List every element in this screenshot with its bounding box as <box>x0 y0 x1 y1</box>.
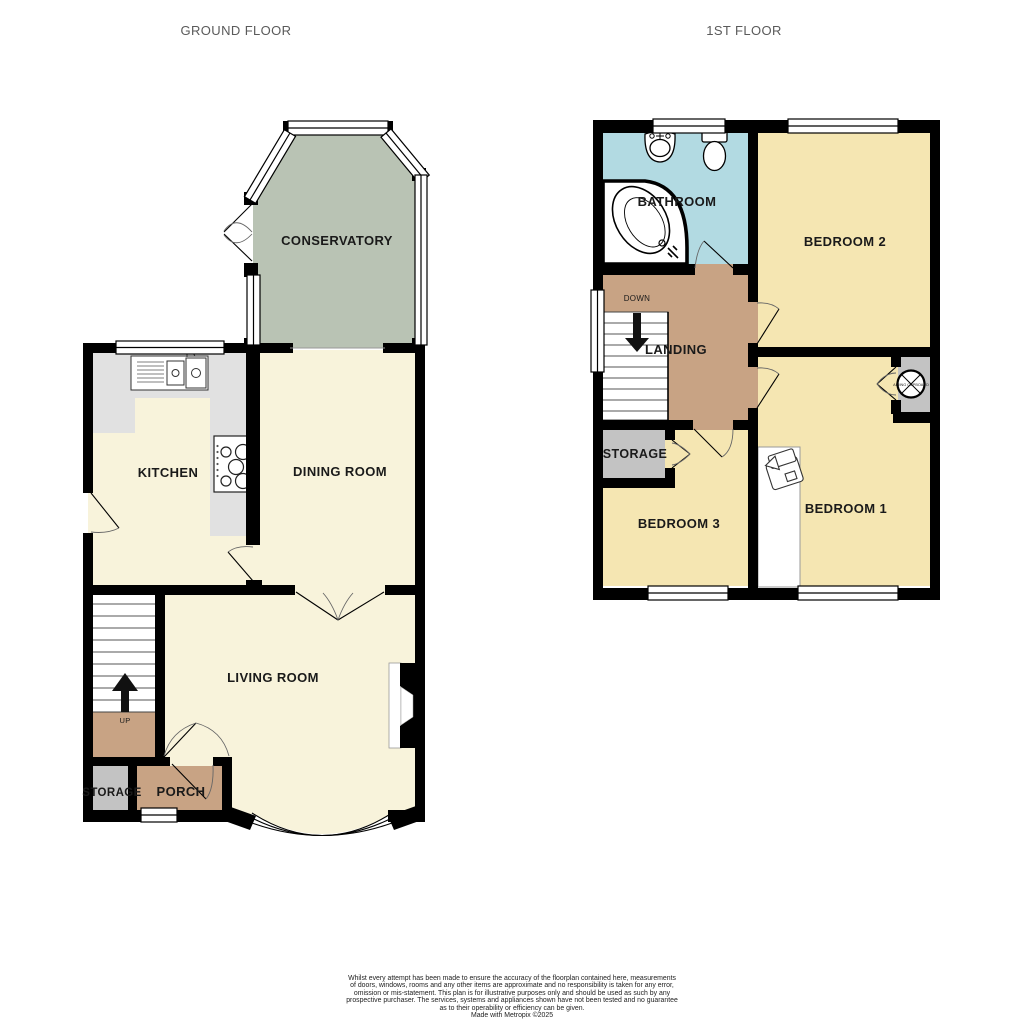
disclaimer-line: Whilst every attempt has been made to en… <box>0 975 1024 982</box>
doorway-bathroom <box>695 264 733 275</box>
title-ground-floor: GROUND FLOOR <box>181 23 292 38</box>
label-storage-first: STORAGE <box>603 447 667 461</box>
ground-floor: CONSERVATORY KITCHEN DINING ROOM LIVING … <box>82 121 429 836</box>
first-floor: BATHROOM BEDROOM 2 LANDING DOWN STORAGE … <box>591 119 940 600</box>
porch-window <box>141 808 177 822</box>
counter-left <box>93 353 135 433</box>
label-down: DOWN <box>624 294 651 303</box>
label-dining-room: DINING ROOM <box>293 464 387 479</box>
conservatory-window-left <box>247 275 260 345</box>
label-living-room: LIVING ROOM <box>227 670 319 685</box>
disclaimer-line: omission or mis-statement. This plan is … <box>0 990 1024 997</box>
label-landing: LANDING <box>645 342 707 357</box>
toilet-icon <box>702 129 727 171</box>
wardrobe-bedroom1 <box>758 447 804 587</box>
doorway-bedroom2 <box>748 302 758 343</box>
disclaimer-line: prospective purchaser. The services, sys… <box>0 997 1024 1004</box>
bathroom-window <box>653 119 725 133</box>
bedroom1-window <box>798 586 898 600</box>
label-conservatory: CONSERVATORY <box>281 233 393 248</box>
bay-floor <box>250 812 394 834</box>
disclaimer: Whilst every attempt has been made to en… <box>0 975 1024 1019</box>
label-kitchen: KITCHEN <box>138 465 199 480</box>
disclaimer-line: of doors, windows, rooms and any other i… <box>0 982 1024 989</box>
staircase-down <box>602 312 668 420</box>
bedroom3-window <box>648 586 728 600</box>
title-first-floor: 1ST FLOOR <box>706 23 782 38</box>
kitchen-window <box>116 341 224 354</box>
doorway-bedroom1 <box>748 367 758 408</box>
basin-icon <box>645 132 675 163</box>
metropix-credit: Made with Metropix ©2025 <box>0 1012 1024 1019</box>
staircase-up <box>88 592 157 712</box>
landing-window <box>591 290 604 372</box>
floorplan-page: CONSERVATORY KITCHEN DINING ROOM LIVING … <box>0 0 1024 1023</box>
label-bedroom2: BEDROOM 2 <box>804 234 886 249</box>
label-porch: PORCH <box>157 784 206 799</box>
disclaimer-line: as to their operability or efficiency ca… <box>0 1005 1024 1012</box>
conservatory-window-top <box>288 121 388 135</box>
label-airing-cupboard: AIRING CUPBOARD <box>893 383 929 387</box>
sink-unit-icon <box>131 353 208 390</box>
label-bathroom: BATHROOM <box>638 194 717 209</box>
conservatory-window-right <box>415 175 427 345</box>
chimney-fireplace <box>389 663 424 748</box>
label-storage-ground: STORAGE <box>82 787 141 799</box>
bedroom2-window <box>788 119 898 133</box>
label-up: UP <box>119 716 130 725</box>
doorway-bedroom3 <box>693 420 733 430</box>
label-bedroom3: BEDROOM 3 <box>638 516 720 531</box>
label-bedroom1: BEDROOM 1 <box>805 501 887 516</box>
floorplan-canvas: CONSERVATORY KITCHEN DINING ROOM LIVING … <box>0 0 1024 1023</box>
